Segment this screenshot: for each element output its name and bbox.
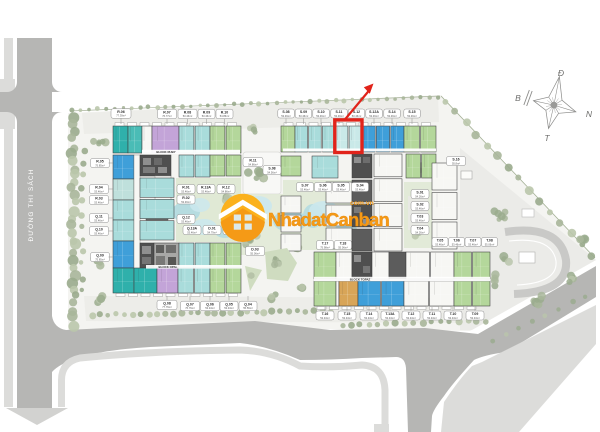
svg-text:77.76m²: 77.76m²: [162, 305, 172, 309]
svg-text:S.14: S.14: [388, 110, 395, 114]
svg-text:R.05: R.05: [96, 160, 103, 164]
svg-text:53.46m²: 53.46m²: [187, 230, 197, 234]
svg-text:S.11: S.11: [335, 110, 342, 114]
svg-text:53.46m²: 53.46m²: [181, 200, 191, 204]
svg-text:53.46m²: 53.46m²: [94, 218, 104, 222]
svg-text:53.43m²: 53.43m²: [427, 316, 437, 320]
svg-text:53.46m²: 53.46m²: [352, 114, 362, 118]
svg-text:75.85m²: 75.85m²: [95, 257, 105, 261]
svg-text:S.15: S.15: [408, 110, 415, 114]
svg-text:S.06: S.06: [319, 184, 326, 188]
svg-text:53.46m²: 53.46m²: [369, 114, 379, 118]
svg-text:53.46m²: 53.46m²: [452, 242, 462, 246]
svg-text:55.8m²: 55.8m²: [452, 161, 460, 165]
svg-text:R.11: R.11: [249, 159, 256, 163]
svg-text:R.01: R.01: [182, 186, 189, 190]
svg-text:55.56m²: 55.56m²: [243, 306, 253, 310]
svg-text:54.86m²: 54.86m²: [248, 162, 258, 166]
svg-text:53.43m²: 53.43m²: [224, 306, 234, 310]
svg-text:53.43m²: 53.43m²: [470, 316, 480, 320]
svg-text:R.10: R.10: [221, 110, 228, 114]
svg-text:53.46m²: 53.46m²: [318, 187, 328, 191]
svg-text:53.46m²: 53.46m²: [94, 200, 104, 204]
svg-text:S.12A: S.12A: [369, 110, 379, 114]
svg-text:75.98m²: 75.98m²: [320, 245, 330, 249]
svg-text:77.39m²: 77.39m²: [116, 114, 126, 118]
svg-text:53.46m²: 53.46m²: [181, 189, 191, 193]
svg-text:Q.13A: Q.13A: [187, 227, 198, 231]
svg-text:T.12: T.12: [408, 312, 415, 316]
svg-text:T.06: T.06: [453, 239, 460, 243]
svg-text:T.11: T.11: [429, 312, 435, 316]
svg-text:53.43m²: 53.43m²: [205, 306, 215, 310]
svg-text:Q.10: Q.10: [95, 228, 103, 232]
svg-text:T.09: T.09: [472, 312, 479, 316]
svg-text:53.46m²: 53.46m²: [316, 114, 326, 118]
svg-text:53.46m²: 53.46m²: [407, 114, 417, 118]
svg-text:S.16: S.16: [452, 158, 459, 162]
svg-text:S.12: S.12: [353, 110, 360, 114]
svg-text:S.04: S.04: [356, 184, 363, 188]
svg-text:53.43m²: 53.43m²: [406, 316, 416, 320]
svg-text:53.46m²: 53.46m²: [183, 114, 193, 118]
svg-text:T.18: T.18: [340, 242, 347, 246]
svg-text:53.43m²: 53.43m²: [320, 316, 330, 320]
svg-text:55.06m²: 55.06m²: [250, 251, 260, 255]
svg-text:T.04: T.04: [417, 227, 424, 231]
svg-text:T.05: T.05: [437, 239, 444, 243]
svg-text:Q.11: Q.11: [95, 215, 102, 219]
svg-text:ĐƯỜNG THI SÁCH: ĐƯỜNG THI SÁCH: [26, 169, 35, 242]
svg-text:S.08: S.08: [268, 167, 275, 171]
svg-text:R.09: R.09: [203, 110, 210, 114]
svg-text:54.26m²: 54.26m²: [415, 194, 425, 198]
svg-text:S.05: S.05: [337, 184, 344, 188]
svg-text:BLOCK OPAL: BLOCK OPAL: [159, 265, 178, 269]
svg-text:53.46m²: 53.46m²: [387, 114, 397, 118]
svg-text:Q.12: Q.12: [182, 216, 190, 220]
svg-text:76.76m²: 76.76m²: [185, 306, 195, 310]
svg-text:S.09: S.09: [300, 110, 307, 114]
svg-text:Q.06: Q.06: [206, 302, 214, 306]
svg-text:54.56m²: 54.56m²: [267, 170, 277, 174]
svg-text:S.10: S.10: [317, 110, 324, 114]
svg-text:55.06m²: 55.06m²: [485, 242, 495, 246]
svg-text:53.46m²: 53.46m²: [281, 114, 291, 118]
svg-text:53.43m²: 53.43m²: [364, 316, 374, 320]
svg-text:53.46m²: 53.46m²: [299, 114, 309, 118]
svg-text:T: T: [544, 133, 550, 143]
svg-text:Đ: Đ: [558, 68, 564, 78]
svg-text:53.46m²: 53.46m²: [94, 189, 104, 193]
svg-text:T.08: T.08: [486, 239, 493, 243]
svg-text:53.43m²: 53.43m²: [448, 316, 458, 320]
svg-text:T.15: T.15: [344, 312, 351, 316]
svg-text:D.03: D.03: [251, 248, 258, 252]
svg-text:53.46m²: 53.46m²: [202, 114, 212, 118]
svg-text:T.07: T.07: [470, 239, 477, 243]
svg-text:T.10: T.10: [450, 312, 457, 316]
svg-text:S.01: S.01: [416, 191, 423, 195]
svg-text:53.46m²: 53.46m²: [415, 206, 425, 210]
svg-text:Q.04: Q.04: [244, 302, 252, 306]
svg-text:T.14: T.14: [366, 312, 373, 316]
svg-text:53.46m²: 53.46m²: [334, 114, 344, 118]
svg-text:com.vn: com.vn: [350, 200, 374, 207]
svg-text:N: N: [586, 109, 593, 119]
svg-text:R.03: R.03: [95, 197, 102, 201]
svg-text:S.07: S.07: [301, 184, 308, 188]
svg-text:BLOCK RUBY: BLOCK RUBY: [156, 150, 175, 154]
svg-text:R.08: R.08: [184, 110, 191, 114]
svg-text:T.16: T.16: [322, 312, 329, 316]
svg-text:BLOCK TOPAZ: BLOCK TOPAZ: [350, 277, 371, 281]
svg-text:53.46m²: 53.46m²: [201, 189, 211, 193]
svg-text:76.77m²: 76.77m²: [162, 114, 172, 118]
svg-text:54.26m²: 54.26m²: [415, 230, 425, 234]
svg-text:Q.07: Q.07: [186, 302, 194, 306]
svg-text:NhadatCanban: NhadatCanban: [268, 209, 389, 230]
svg-text:Q.09: Q.09: [96, 254, 104, 258]
svg-text:T.13A: T.13A: [385, 312, 395, 316]
svg-text:D.01: D.01: [208, 227, 215, 231]
svg-text:75.85m²: 75.85m²: [95, 163, 105, 167]
svg-text:54.86m²: 54.86m²: [220, 114, 230, 118]
svg-text:R.06: R.06: [117, 110, 124, 114]
svg-text:Q.08: Q.08: [163, 301, 171, 305]
svg-text:R.07: R.07: [163, 110, 170, 114]
svg-text:S.02: S.02: [416, 203, 423, 207]
svg-text:55.06m²: 55.06m²: [338, 245, 348, 249]
svg-text:R.02: R.02: [182, 196, 189, 200]
svg-text:T.17: T.17: [322, 242, 329, 246]
svg-text:T.03: T.03: [417, 215, 424, 219]
svg-text:53.43m²: 53.43m²: [385, 316, 395, 320]
svg-text:R.13A: R.13A: [201, 186, 211, 190]
svg-text:53.46m²: 53.46m²: [181, 219, 191, 223]
svg-text:S.08: S.08: [282, 110, 289, 114]
svg-text:54.79m²: 54.79m²: [207, 230, 217, 234]
svg-text:53.43m²: 53.43m²: [342, 316, 352, 320]
svg-text:R.12: R.12: [222, 186, 229, 190]
svg-text:53.46m²: 53.46m²: [435, 242, 445, 246]
svg-text:53.46m²: 53.46m²: [336, 187, 346, 191]
svg-text:53.46m²: 53.46m²: [94, 231, 104, 235]
svg-text:54.86m²: 54.86m²: [221, 189, 231, 193]
svg-text:Q.05: Q.05: [225, 302, 233, 306]
svg-text:53.46m²: 53.46m²: [468, 242, 478, 246]
svg-text:53.46m²: 53.46m²: [300, 187, 310, 191]
svg-text:53.46m²: 53.46m²: [415, 218, 425, 222]
svg-text:R.04: R.04: [95, 186, 102, 190]
svg-text:B: B: [515, 93, 521, 103]
svg-text:53.46m²: 53.46m²: [355, 187, 365, 191]
